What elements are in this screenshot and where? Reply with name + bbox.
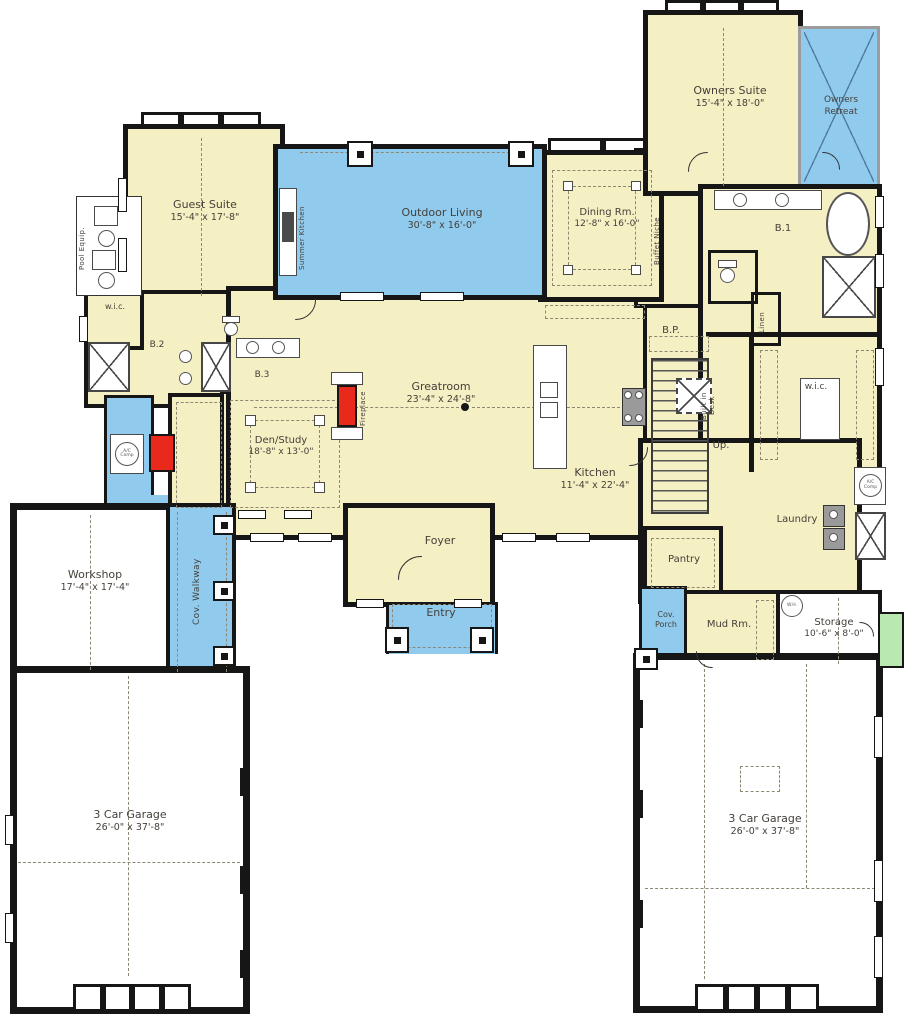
room-name: 3 Car Garage [60, 808, 200, 822]
column-icon [213, 646, 235, 666]
room-dims: 17'-4" x 17'-4" [30, 582, 160, 594]
screen-line [300, 152, 515, 153]
up-label: Up. [703, 439, 739, 452]
window-icon [134, 986, 160, 1010]
room-dims: 15'-4" x 18'-0" [665, 98, 795, 110]
column-icon [470, 627, 494, 653]
column-icon [347, 141, 373, 167]
window-icon [356, 599, 384, 608]
pool-pump-icon [98, 272, 115, 289]
room-name: Cov. [644, 610, 688, 620]
toilet-icon [720, 268, 735, 283]
window-icon [118, 238, 127, 272]
pantry-label: Pantry [652, 553, 716, 566]
mud-label: Mud Rm. [694, 618, 764, 631]
room-name: Porch [644, 620, 688, 630]
sink-icon [733, 193, 747, 207]
fireplace-icon [149, 434, 175, 472]
window-icon [874, 716, 883, 758]
window-icon [164, 986, 190, 1010]
garage-left-label: 3 Car Garage 26'-0" x 37'-8" [60, 808, 200, 835]
appliance-dial [829, 533, 838, 542]
post-icon [631, 265, 641, 275]
sink-icon [179, 372, 192, 385]
attic-access [740, 766, 780, 792]
wh-label: W.H. [787, 604, 797, 609]
b1-label: B.1 [763, 222, 803, 235]
toilet-tank [222, 316, 240, 323]
cov-walkway-label: Cov. Walkway [192, 544, 202, 640]
b3-label: B.3 [247, 370, 277, 382]
window-icon [238, 510, 266, 519]
room-name: Retreat [806, 107, 876, 119]
guest-suite-label: Guest Suite 15'-4" x 17'-8" [140, 198, 270, 225]
water-heater-icon: W.H. [781, 595, 803, 617]
column-icon [213, 581, 235, 601]
window-icon [79, 316, 88, 342]
column-icon [634, 648, 658, 670]
room-name: Workshop [30, 568, 160, 582]
sink-icon [272, 341, 285, 354]
burner-icon [635, 391, 643, 399]
room-name: Guest Suite [140, 198, 270, 212]
builtin-cabinet [331, 372, 363, 385]
window-icon [728, 986, 755, 1010]
b2-label: B.2 [142, 340, 172, 352]
window-icon [759, 986, 786, 1010]
dashed-line [645, 888, 875, 889]
vestibule-coffer [176, 402, 222, 508]
window-icon [284, 510, 312, 519]
wall-pilaster [633, 700, 643, 728]
ac-label: A/C Comp [116, 450, 138, 459]
fireplace-icon [337, 385, 357, 427]
wall-pilaster [633, 900, 643, 928]
laundry-label: Laundry [757, 513, 837, 526]
window-icon [340, 292, 384, 301]
post-icon [245, 482, 256, 493]
post-icon [314, 415, 325, 426]
room-dims: 11'-4" x 22'-4" [540, 480, 650, 492]
shower-icon [822, 256, 876, 318]
window-icon [420, 292, 464, 301]
den-label: Den/Study 18'-8" x 13'-0" [221, 434, 341, 459]
equipment-pad-x [855, 512, 886, 560]
toilet-tank [718, 260, 737, 268]
room-name: Storage [788, 616, 880, 629]
wall-segment [706, 332, 878, 337]
workshop-label: Workshop 17'-4" x 17'-4" [30, 568, 160, 595]
room-name: Outdoor Living [362, 206, 522, 220]
window-icon [5, 815, 14, 845]
garage-right-doors [695, 984, 819, 1012]
room-dims: 26'-0" x 37'-8" [60, 822, 200, 834]
outdoor-living-label: Outdoor Living 30'-8" x 16'-0" [362, 206, 522, 233]
grill-icon [282, 212, 294, 242]
burner-icon [624, 414, 632, 422]
greatroom-label: Greatroom 23'-4" x 24'-8" [371, 380, 511, 407]
post-icon [563, 181, 573, 191]
sink-icon [775, 193, 789, 207]
post-icon [631, 181, 641, 191]
bathtub-icon [826, 192, 870, 256]
wic-left-label: w.i.c. [92, 302, 138, 312]
room-dims: 18'-8" x 13'-0" [221, 447, 341, 459]
entry-label: Entry [415, 606, 467, 620]
storage-label: Storage 10'-6" x 8'-0" [788, 616, 880, 641]
room-dims: 26'-0" x 37'-8" [705, 826, 825, 838]
shower-icon [201, 342, 231, 392]
wic-left-room [84, 290, 144, 350]
window-icon [874, 860, 883, 902]
column-icon [508, 141, 534, 167]
window-icon [250, 533, 284, 542]
room-name: Kitchen [540, 466, 650, 480]
bp-label: B.P. [648, 324, 694, 337]
owners-retreat-label: Owners Retreat [806, 95, 876, 118]
room-dims: 30'-8" x 16'-0" [362, 220, 522, 232]
side-stoop [878, 612, 904, 668]
column-icon [213, 515, 235, 535]
dining-label: Dining Rm. 12'-8" x 16'-0" [548, 206, 666, 231]
window-icon [502, 533, 536, 542]
post-icon [563, 265, 573, 275]
window-icon [105, 986, 131, 1010]
wic-right-label: w.i.c. [791, 382, 841, 394]
cov-porch-label: Cov. Porch [644, 610, 688, 631]
post-icon [314, 482, 325, 493]
toilet-icon [224, 322, 238, 336]
wall-pilaster [240, 866, 250, 894]
window-icon [298, 533, 332, 542]
fireplace-label: Fireplace [359, 386, 367, 432]
foyer-label: Foyer [400, 534, 480, 548]
pool-equip-label: Pool Equip. [78, 220, 86, 276]
sink-icon [246, 341, 259, 354]
linen-label: Linen [758, 300, 766, 344]
pool-equipment [94, 206, 118, 226]
sink-icon [540, 382, 558, 398]
window-icon [875, 196, 884, 228]
window-icon [875, 254, 884, 288]
shower-icon [88, 342, 130, 392]
window-icon [118, 178, 127, 212]
room-dims: 23'-4" x 24'-8" [371, 394, 511, 406]
post-icon [245, 415, 256, 426]
pool-equipment [92, 250, 116, 270]
window-icon [697, 986, 724, 1010]
closet-shelving [856, 350, 874, 460]
window-icon [790, 986, 817, 1010]
built-in-desk-label: Built in Desk [700, 382, 716, 430]
dashed-line [806, 664, 807, 888]
ac-label: A/C Comp [860, 481, 881, 490]
burner-icon [624, 391, 632, 399]
linen-closet [751, 292, 781, 346]
room-name: 3 Car Garage [705, 812, 825, 826]
summer-kitchen-label: Summer Kitchen [298, 196, 306, 280]
wall-pilaster [633, 790, 643, 818]
room-name: Owners [806, 95, 876, 107]
vanity-counter [714, 190, 822, 210]
window-icon [5, 913, 14, 943]
owners-suite-label: Owners Suite 15'-4" x 18'-0" [665, 84, 795, 111]
burner-icon [635, 414, 643, 422]
kitchen-counter [545, 305, 645, 319]
closet-shelving [760, 350, 778, 460]
room-name: Owners Suite [665, 84, 795, 98]
room-dims: 15'-4" x 17'-8" [140, 212, 270, 224]
wall-pilaster [240, 768, 250, 796]
room-name: Greatroom [371, 380, 511, 394]
ac-comp-icon: A/C Comp [115, 442, 139, 466]
buffet-niche-label: Buffet Niche [653, 210, 661, 272]
room-name: Den/Study [221, 434, 341, 447]
sink-icon [179, 350, 192, 363]
room-dims: 12'-8" x 16'-0" [548, 219, 666, 231]
foyer-room [343, 503, 495, 607]
window-icon [875, 348, 884, 386]
ac-comp-icon: A/C Comp [859, 474, 882, 497]
floor-plan: W.H. A/C Comp A/C Comp [0, 0, 904, 1024]
garage-right-label: 3 Car Garage 26'-0" x 37'-8" [705, 812, 825, 839]
bp-cabinets [649, 336, 709, 352]
pool-pump-icon [98, 230, 115, 247]
wall-pilaster [240, 950, 250, 978]
window-icon [75, 986, 101, 1010]
wall-segment [749, 336, 754, 472]
room-name: Dining Rm. [548, 206, 666, 219]
window-icon [874, 936, 883, 978]
room-dims: 10'-6" x 8'-0" [788, 629, 880, 641]
dashed-line [177, 512, 178, 672]
window-icon [556, 533, 590, 542]
column-icon [385, 627, 409, 653]
dashed-line [18, 862, 240, 863]
kitchen-label: Kitchen 11'-4" x 22'-4" [540, 466, 650, 493]
garage-left-doors [73, 984, 191, 1012]
sink-icon [540, 402, 558, 418]
garage-left-room [10, 666, 250, 1014]
